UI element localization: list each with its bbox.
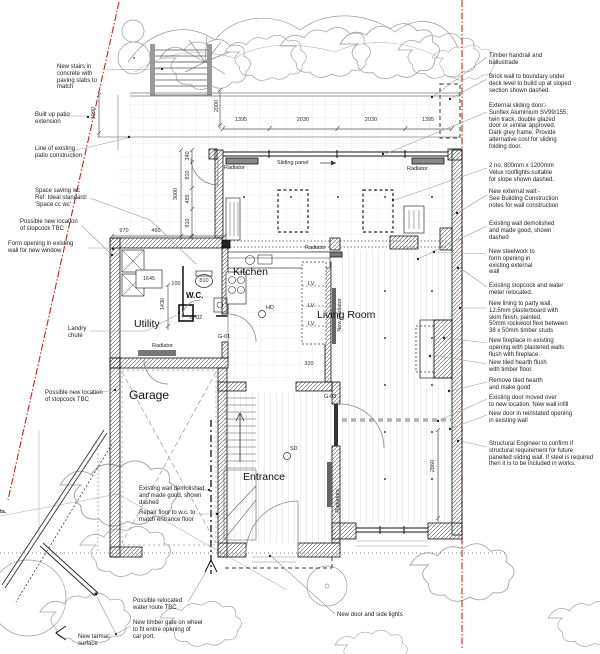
note-velux: 2 no. 800mm x 1200mm Velux rooflights su… (489, 163, 600, 183)
note-form-opening: Form opening in existing wall for new wi… (8, 241, 73, 255)
note-stopcock-1: Possible new location of stopcock TBC (20, 219, 78, 233)
living-window-glazing (356, 526, 428, 534)
note-timber-handrail: Timber handrail and ballustrade (489, 53, 600, 67)
note-tarmac: New tarmac surface (78, 634, 110, 648)
dim-1395-b: 1395 (415, 117, 441, 123)
note-existing-wall-demolished: Existing wall demolished and made good, … (489, 221, 600, 241)
note-structural-engineer: Structural Engineer to confirm if struct… (489, 441, 600, 468)
note-door-side-lights: New door and side lights (337, 612, 403, 619)
garage-left-wall (110, 358, 120, 557)
radiators-bar (327, 462, 332, 507)
note-new-external-wall: New external wall:- See Building Constru… (489, 189, 600, 209)
room-label-garage: Garage (129, 388, 169, 402)
note-door-reinstated: New door in reinstated opening in existi… (489, 411, 600, 425)
note-space-saving-wc: Space saving wc Ref: Ideal standard: 'Sp… (35, 188, 87, 208)
utility-radiator (138, 350, 176, 356)
note-stopcock-relocated: Existing stopcock and water meter reloca… (489, 283, 600, 297)
note-fireplace: New fireplace in existing opening with p… (489, 338, 600, 358)
door-tag-g02: G-02 (190, 315, 202, 321)
radiator-block (226, 158, 258, 164)
entrance-front-wall (218, 543, 246, 557)
timber-gate-line (40, 543, 98, 596)
dim-2000: 2000 (214, 91, 220, 121)
hd-marker: HD (266, 305, 274, 311)
radiator-label: Radiator (224, 165, 245, 171)
note-garage-wall-demolished: Existing wall demolished and made good, … (139, 486, 204, 506)
sd-marker: SD (290, 446, 298, 452)
garage-right-wall (218, 368, 227, 557)
dim-970: 970 (111, 228, 137, 234)
utility-left-wall (110, 238, 120, 368)
note-landry-chute: Landry chute (68, 326, 86, 340)
note-built-up-patio: Built up patio extension (35, 112, 70, 126)
note-stopcock-2: Possible new location of stopcock TBC (45, 390, 103, 404)
new-stairs (150, 44, 212, 95)
room-label-living-room: Living Room (317, 309, 375, 321)
lv-marker: LV (308, 321, 314, 327)
dim-3000: 3000 (173, 179, 179, 209)
fireplace (434, 320, 452, 378)
note-party-wall: New lining to party wall, 12.5mm plaster… (489, 301, 600, 335)
dim-1645: 1645 (136, 276, 162, 282)
radiator-label: Radiator (152, 343, 173, 349)
note-repair-floor: Repair floor to w.c. to match entrance f… (139, 510, 195, 524)
garage-top-wall (110, 358, 228, 368)
living-front-wall (428, 523, 462, 539)
note-door-moved: Existing door moved over to new location… (489, 395, 600, 409)
right-external-wall (452, 150, 462, 535)
dim-2030-b: 2030 (358, 117, 384, 123)
dim-2030-a: 2030 (290, 117, 316, 123)
room-label-kitchen: Kitchen (233, 266, 268, 278)
lv-marker: LV (308, 303, 314, 309)
cropped-label-fragment: ts. (0, 509, 6, 515)
note-remove-hearth: Remove tiled hearth and make good (489, 378, 600, 392)
dim-1395-a: 1395 (228, 117, 254, 123)
note-new-stairs: New stairs in concrete with paving slabs… (57, 64, 97, 91)
note-brick-wall: Brick wall to boundary under deck level … (489, 74, 600, 94)
sliding-panel-label: Sliding panel (277, 160, 309, 166)
radiator-label: Radiator (407, 166, 428, 172)
utility-top-wall (110, 238, 222, 248)
dim-810-wc: 810 (191, 278, 217, 284)
dim-1090: 1090 (91, 98, 97, 128)
room-label-entrance: Entrance (243, 471, 285, 483)
room-label-wc: W.C. (186, 291, 203, 300)
dim-320: 320 (296, 361, 322, 367)
radiator-label: Radiator (305, 245, 326, 251)
garage-front-wall (110, 547, 142, 557)
dim-910: 910 (185, 208, 191, 238)
note-line-existing-patio: Line of existing patio construction (35, 146, 82, 160)
door-tag-g03: G-03 (324, 394, 336, 400)
entrance-front-wall (298, 543, 340, 557)
radiators-label: Radiators (335, 479, 341, 523)
note-timber-gate: New timber gate on wheel to fit entire o… (133, 620, 202, 640)
dim-100: 100 (163, 281, 189, 287)
lv-marker: LV (308, 281, 314, 287)
note-steelwork: New steelwork to form opening in existin… (489, 249, 600, 276)
dim-2860: 2860 (430, 451, 436, 481)
architectural-floor-plan: New stairs in concrete with paving slabs… (0, 0, 600, 654)
note-hearth: New tiled hearth flush with timber floor… (489, 360, 600, 374)
dim-1430: 1430 (160, 289, 166, 319)
room-label-utility: Utility (134, 318, 160, 330)
note-external-sliding-door: External sliding door:- Sunflex Aluminiu… (489, 103, 600, 150)
door-tag-g01: G-01 (218, 334, 230, 340)
day-room-left-wall (215, 150, 223, 238)
radiator-block (412, 158, 444, 164)
new-radiator-label: New Radiator (337, 293, 343, 337)
dim-460: 460 (143, 228, 169, 234)
sliding-door-glazing (223, 150, 448, 158)
note-water-route: Possible relocated water route TBC (133, 598, 182, 612)
